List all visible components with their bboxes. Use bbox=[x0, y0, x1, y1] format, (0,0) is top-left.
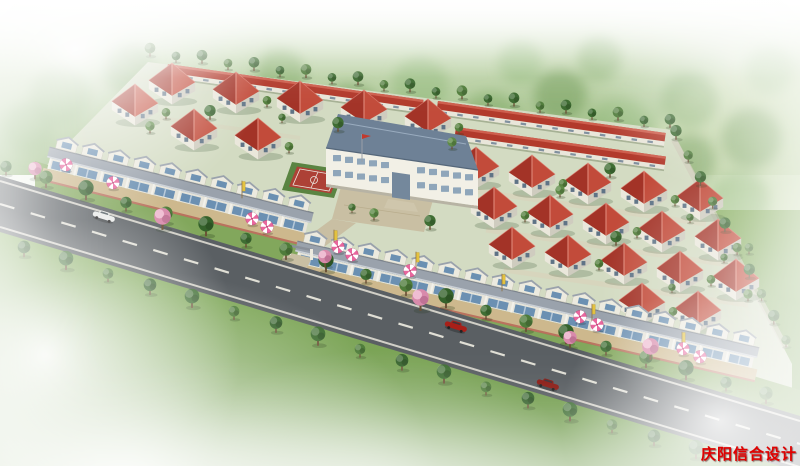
site-plan-rendering bbox=[0, 0, 800, 466]
school-window bbox=[453, 187, 461, 193]
school-window bbox=[357, 173, 365, 179]
forest-texture bbox=[498, 40, 542, 84]
school-window bbox=[333, 170, 341, 176]
school-entrance bbox=[392, 172, 410, 200]
school-window bbox=[465, 174, 473, 180]
forest-texture bbox=[746, 46, 794, 94]
school-window bbox=[345, 172, 353, 178]
aerial-rendering: 庆阳信合设计 bbox=[0, 0, 800, 466]
school-window bbox=[345, 157, 353, 163]
school-window bbox=[417, 182, 425, 188]
school-window bbox=[453, 172, 461, 178]
school-window bbox=[441, 186, 449, 192]
school-window bbox=[429, 169, 437, 175]
forest-texture bbox=[578, 36, 622, 80]
forest-texture bbox=[2, 102, 54, 154]
school-window bbox=[357, 158, 365, 164]
school-window bbox=[429, 184, 437, 190]
school-window bbox=[369, 175, 377, 181]
school-window bbox=[381, 162, 389, 168]
school-window bbox=[417, 167, 425, 173]
forest-texture bbox=[722, 108, 782, 168]
school-window bbox=[465, 189, 473, 195]
watermark-text: 庆阳信合设计 bbox=[701, 443, 797, 464]
school-window bbox=[333, 155, 341, 161]
school-window bbox=[441, 171, 449, 177]
school-window bbox=[369, 160, 377, 166]
gate-post bbox=[310, 249, 313, 260]
school-window bbox=[381, 177, 389, 183]
